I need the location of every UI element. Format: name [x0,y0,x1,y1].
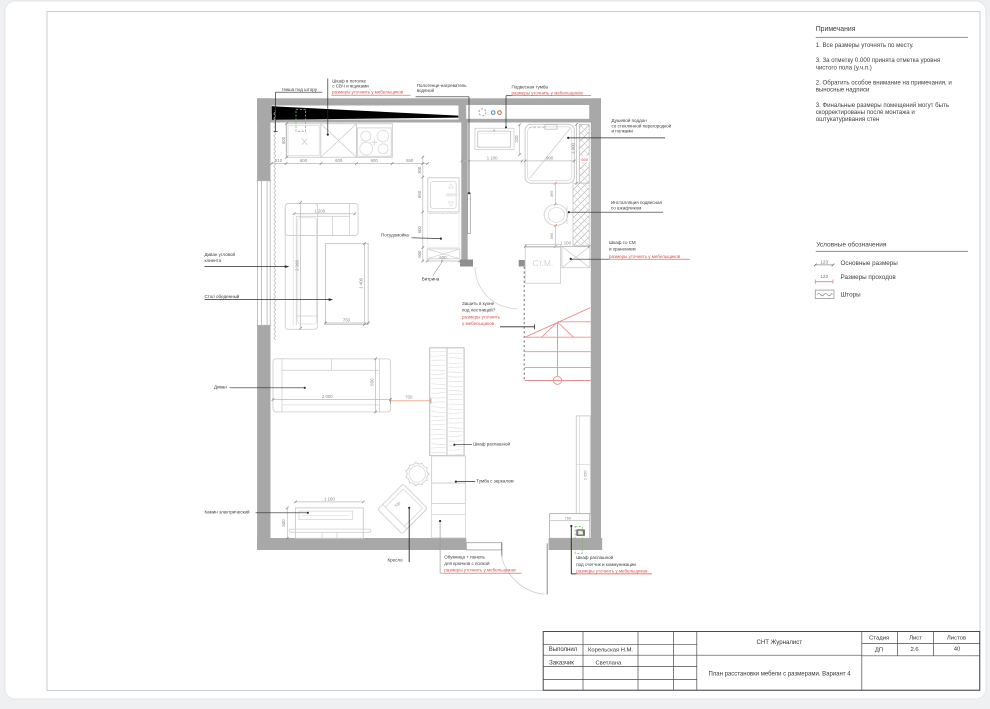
svg-text:Размеры проходов: Размеры проходов [841,274,897,281]
svg-text:и хранением: и хранением [609,247,636,252]
svg-text:Шкаф распашной: Шкаф распашной [473,440,510,446]
svg-text:365: 365 [549,232,554,239]
svg-text:и полками: и полками [612,129,634,134]
svg-text:План расстановки мебели с разм: План расстановки мебели с размерами. Вар… [708,671,851,677]
svg-text:900: 900 [546,155,554,160]
svg-text:1 100: 1 100 [324,497,335,502]
svg-text:3. За отметку 0.000 принята от: 3. За отметку 0.000 принята отметка уров… [816,57,940,64]
svg-text:у мебельщиков: у мебельщиков [462,321,495,326]
svg-text:2. Обратить особое внимание на: 2. Обратить особое внимание на примечани… [816,80,952,87]
svg-text:760: 760 [565,515,572,520]
svg-text:Шкаф со СМ: Шкаф со СМ [609,240,636,245]
svg-text:600: 600 [300,158,308,163]
svg-text:1 000: 1 000 [570,143,575,154]
svg-text:Основные размеры: Основные размеры [841,260,899,267]
svg-text:под счетчик и коммуникации: под счетчик и коммуникации [576,562,636,567]
svg-text:700: 700 [405,394,413,399]
svg-text:2.6: 2.6 [910,647,919,653]
svg-text:123: 123 [820,274,828,279]
svg-text:Подвесная тумба: Подвесная тумба [512,84,549,89]
svg-text:размеры уточнить у мебельщиков: размеры уточнить у мебельщиков [609,254,681,259]
svg-text:320: 320 [514,135,519,143]
svg-text:2 050: 2 050 [583,470,588,481]
svg-text:Диван: Диван [214,384,227,389]
svg-text:600: 600 [417,250,422,258]
svg-text:Условные обозначения: Условные обозначения [816,241,887,249]
svg-text:Стадия: Стадия [869,636,889,642]
svg-text:размеры уточнить у мебельщиков: размеры уточнить у мебельщиков [444,568,516,573]
svg-text:Ст.М.: Ст.М. [533,258,554,268]
svg-text:Выполнил: Выполнил [549,647,578,653]
svg-text:1 400: 1 400 [358,277,363,288]
svg-text:300: 300 [417,166,422,174]
svg-text:40: 40 [954,647,961,653]
svg-text:Корельская Н.М.: Корельская Н.М. [588,647,633,653]
svg-text:1 200: 1 200 [314,208,325,213]
svg-text:оштукатуривания стен: оштукатуривания стен [816,116,880,123]
svg-text:600: 600 [439,255,447,260]
svg-text:со шкафчиком: со шкафчиком [611,205,641,210]
svg-text:1 100: 1 100 [487,155,498,160]
svg-text:600: 600 [417,226,422,234]
svg-text:210: 210 [275,158,283,163]
svg-text:2 160: 2 160 [295,259,300,270]
svg-text:Листов: Листов [947,636,966,642]
svg-text:Кресло: Кресло [388,558,404,563]
svg-text:Шторы: Шторы [841,292,862,299]
svg-text:Светлана: Светлана [596,661,623,667]
svg-text:Душевой поддон: Душевой поддон [612,117,648,123]
svg-text:со стеклянной перегородкой: со стеклянной перегородкой [612,122,672,128]
svg-text:размеры уточнить у мебельщиков: размеры уточнить у мебельщиков [512,90,584,95]
svg-text:500: 500 [281,519,286,527]
svg-text:123: 123 [820,260,828,265]
svg-text:с СВЧ и ящиками: с СВЧ и ящиками [332,83,369,88]
svg-text:Камин электрический: Камин электрический [205,508,250,514]
svg-text:2 000: 2 000 [322,394,333,399]
svg-text:скорректированы после монтажа: скорректированы после монтажа и [816,109,915,116]
svg-text:550: 550 [406,158,414,163]
svg-text:выносные надписи: выносные надписи [816,87,870,94]
svg-text:600: 600 [371,158,379,163]
svg-text:Ниша под штору: Ниша под штору [282,87,317,92]
svg-text:Шкаф распашной: Шкаф распашной [576,554,613,560]
svg-text:чистого пола (у.ч.п.): чистого пола (у.ч.п.) [816,65,872,72]
svg-text:водяной: водяной [417,87,435,93]
svg-text:850: 850 [369,378,374,386]
svg-text:600: 600 [281,136,286,144]
svg-text:Примечания: Примечания [816,26,856,33]
svg-text:клиента: клиента [205,258,222,263]
svg-text:Заказчик: Заказчик [549,660,574,666]
svg-text:ДП: ДП [875,647,883,653]
svg-text:СНТ Журналист: СНТ Журналист [756,639,802,646]
svg-text:для крючков с полкой: для крючков с полкой [444,560,490,566]
svg-text:600: 600 [581,157,588,162]
svg-text:1. Все размеры уточнять по мес: 1. Все размеры уточнять по месту. [816,42,914,49]
svg-text:размеры уточнить у мебельщиков: размеры уточнить у мебельщиков [332,90,404,95]
svg-text:Витрина: Витрина [422,276,440,281]
svg-text:1 100: 1 100 [560,240,571,245]
svg-text:750: 750 [343,318,351,323]
svg-text:под лестницей?: под лестницей? [462,307,496,313]
svg-text:Тумба с зеркалом: Тумба с зеркалом [476,478,513,483]
svg-text:Посудомойка: Посудомойка [381,231,409,237]
svg-text:650: 650 [417,190,422,198]
svg-text:600: 600 [335,158,343,163]
svg-text:365: 365 [549,190,554,197]
svg-text:размеры уточнить: размеры уточнить [462,314,501,319]
svg-text:размеры уточнить у мебельщиков: размеры уточнить у мебельщиков [576,568,648,573]
svg-text:Зашить в кухне: Зашить в кухне [462,301,495,306]
svg-text:Стол обеденный: Стол обеденный [205,293,240,299]
svg-text:Обувница + панель: Обувница + панель [444,555,485,560]
svg-text:Лист: Лист [909,636,922,642]
svg-text:Инсталляция подвесная: Инсталляция подвесная [611,200,662,205]
svg-text:Диван угловой: Диван угловой [205,251,236,257]
